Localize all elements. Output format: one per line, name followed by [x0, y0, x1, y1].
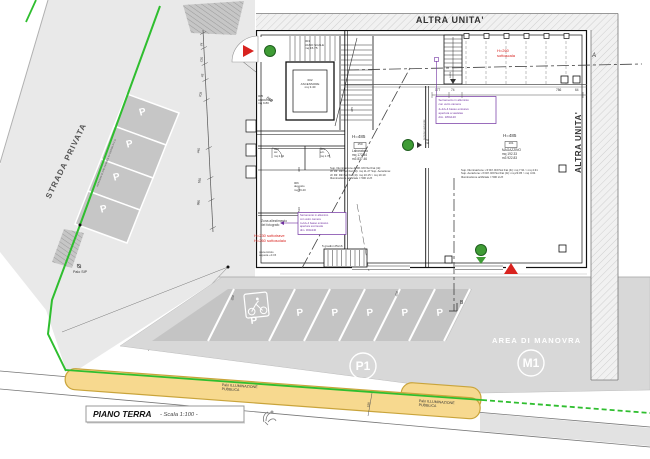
adjacent-unit-label-right: ALTRA UNITA' [574, 112, 584, 173]
stall-p-label: P [296, 307, 304, 320]
note-circle-values: 150 210 [425, 139, 429, 145]
note-sottotrave: H=230 sottotrave H=260 sottosolaio [254, 234, 286, 244]
note-gradini: 5 gradini 25x16 [322, 245, 343, 249]
road-shoulder-se [480, 413, 650, 446]
room-wc: 004 wc mq 2.42 [274, 148, 284, 158]
dim-top-0: 177 [435, 89, 440, 93]
stall-p-label: P [436, 307, 444, 320]
laboratorio-height: H=485 [352, 134, 365, 139]
stair-ladder [444, 35, 462, 84]
note-purple-left: Serramento in alluminio con vetro camera… [300, 214, 328, 233]
stall-p-label: P [401, 307, 409, 320]
external-stair [324, 249, 367, 267]
stall-p-label: P [366, 307, 374, 320]
maneuver-area-label: AREA DI MANOVRA [492, 336, 581, 345]
note-paragraph-left: Sup. Illuminazione di Rif. Ril=Sol Fat (… [330, 167, 391, 180]
dim-int-b: 300 [298, 167, 302, 172]
room-ascensore: 002 ASCENSORE mq 3.40 [297, 79, 323, 90]
dim-top-1: 74 [451, 89, 455, 93]
dim-chain-2: 45 [201, 74, 205, 78]
magazzino-data: MAGAZZINO mq 192.33 m3 922.83 [502, 149, 521, 161]
note-portone: portone sezionale [423, 120, 426, 140]
section-b-label: B [460, 300, 463, 306]
magazzino-height: H=485 [503, 133, 516, 138]
p1-label: P1 [352, 359, 374, 373]
dim-int-c: 810 [298, 187, 302, 192]
dim-int-d: 510 [298, 207, 302, 212]
sheet-title: PIANO TERRA [93, 409, 152, 419]
dim-chain-0: 24 [200, 43, 204, 47]
stall-p-label: P [331, 307, 339, 320]
note-zona: Zona allestimento del fotografo [261, 220, 287, 228]
boundary-node [79, 224, 82, 227]
adjacent-unit-band-right [591, 14, 618, 381]
laboratorio-number: 150 [355, 143, 366, 147]
adjacent-unit-label-top: ALTRA UNITA' [375, 15, 525, 26]
palo-sip-label: Palo SIP [73, 270, 87, 274]
dim-top-2: 786 [556, 89, 561, 93]
dim-top-3: 64 [575, 89, 579, 93]
m1-label: M1 [520, 356, 542, 370]
floor-plan-sheet: STRADA PRIVATA ALTRA UNITA' ALTRA UNITA'… [0, 0, 650, 459]
note-paragraph-right: Sup. Illuminazione: cfr Rif. Ril=Sol Fat… [461, 169, 538, 179]
magazzino-number: 101 [506, 142, 517, 146]
room-antibagno: 003 a.b. mq 1.76 [320, 148, 330, 158]
elevator-shaft [286, 62, 334, 120]
section-a-label: A [592, 53, 596, 60]
driveway-ramp-top [183, 1, 244, 35]
sheet-scale: - Scala 1:100 - [160, 412, 198, 419]
dim-int-a: 385 [351, 107, 355, 112]
room-vano-scale: 001 VANO SCALE mq 15.75 [305, 40, 324, 51]
note-purple-right: Serramento in alluminio con vetro camera… [439, 98, 469, 120]
laboratorio-data: Laboratorio mq 172.84 m3 837.46 [352, 150, 368, 162]
note-quota: pianerottolo a quota +0.15 [259, 251, 276, 258]
stall-p-label: P [250, 315, 258, 328]
note-salita: salita [449, 72, 452, 78]
corner-node [227, 266, 230, 269]
note-sottoscala: H=260 sottoscala [497, 49, 515, 59]
